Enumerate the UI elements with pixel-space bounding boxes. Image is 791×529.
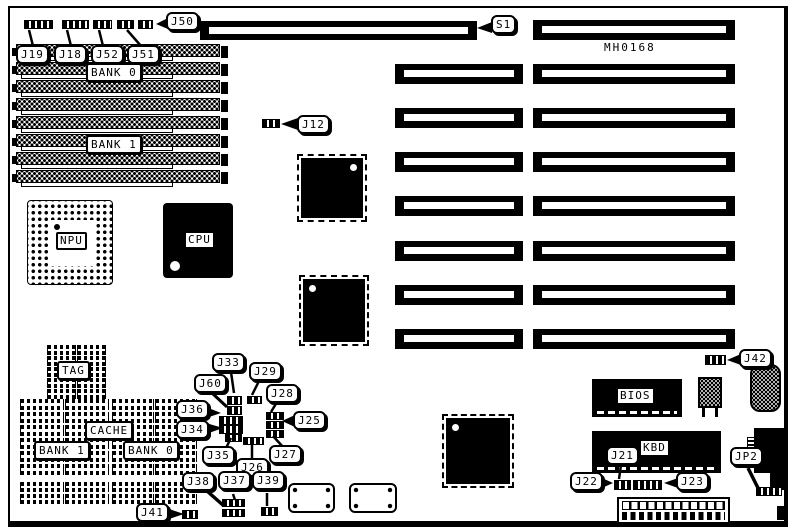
callout-j34: J34 (176, 420, 209, 439)
callout-j60: J60 (194, 374, 227, 393)
motherboard-diagram: MH0168 NPU CPU (0, 0, 791, 529)
callout-j36: J36 (176, 400, 209, 419)
callout-j37: J37 (218, 471, 251, 490)
label-cache: CACHE (85, 421, 133, 440)
label-cache-bank1: BANK 1 (34, 441, 90, 460)
callout-j51: J51 (127, 45, 160, 64)
callout-j33: J33 (212, 353, 245, 372)
label-simm-bank1: BANK 1 (86, 135, 142, 154)
callout-j41: J41 (136, 503, 169, 522)
callout-j12: J12 (297, 115, 330, 134)
callout-s1: S1 (491, 15, 516, 34)
callout-j23: J23 (676, 472, 709, 491)
callout-j18: J18 (54, 45, 87, 64)
callout-j27: J27 (269, 445, 302, 464)
callout-j52: J52 (91, 45, 124, 64)
callout-j19: J19 (16, 45, 49, 64)
callout-j39: J39 (252, 471, 285, 490)
callout-j35: J35 (202, 446, 235, 465)
callout-jp2: JP2 (730, 447, 763, 466)
callout-j50: J50 (166, 12, 199, 31)
label-cache-bank0: BANK 0 (123, 441, 179, 460)
callout-j29: J29 (249, 362, 282, 381)
callout-j42: J42 (739, 349, 772, 368)
callout-j28: J28 (266, 384, 299, 403)
callout-j22: J22 (570, 472, 603, 491)
label-tag: TAG (57, 361, 90, 380)
callout-j38: J38 (182, 472, 215, 491)
callout-j21: J21 (606, 446, 639, 465)
label-simm-bank0: BANK 0 (86, 63, 142, 82)
callout-j25: J25 (293, 411, 326, 430)
